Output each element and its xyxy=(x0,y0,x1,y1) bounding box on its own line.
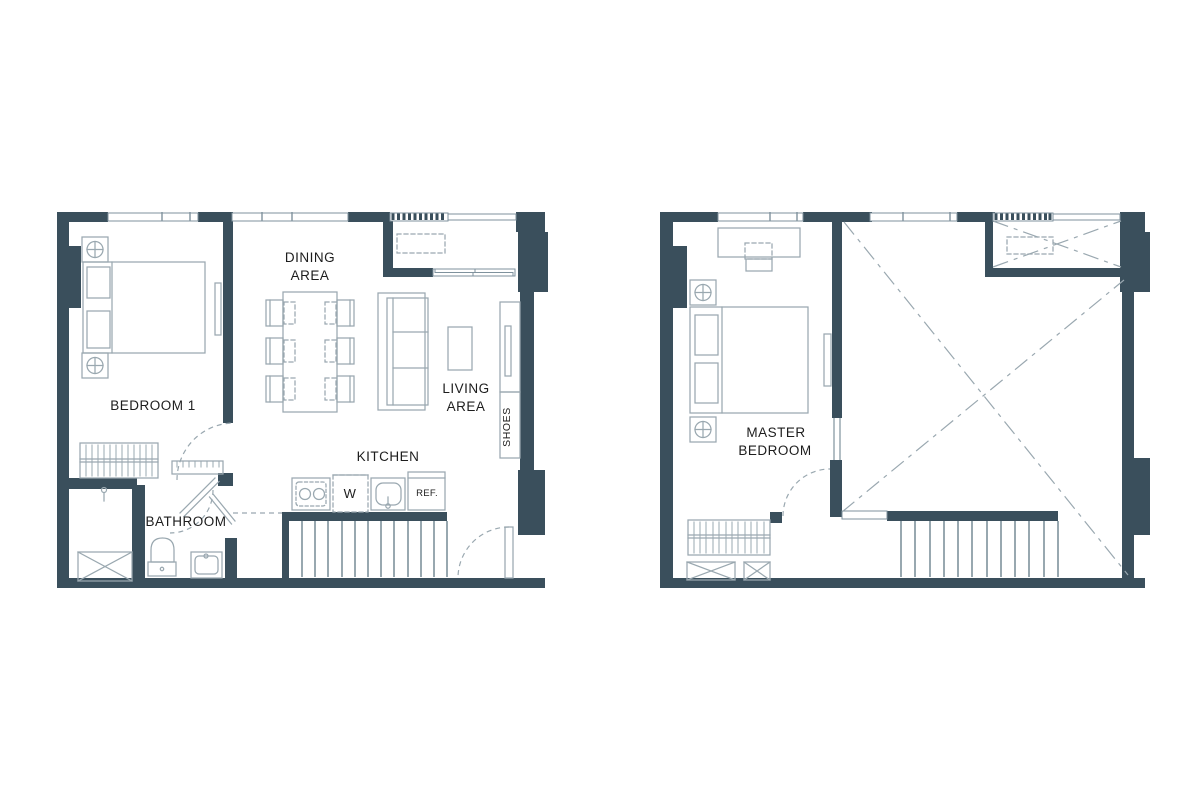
lower-floor-plan: DINING AREA BEDROOM 1 LIVING AREA KITCHE… xyxy=(57,212,548,588)
lower-door-arcs xyxy=(170,423,509,578)
nightstand-lamp-icon xyxy=(82,237,108,262)
dining-chair-icon xyxy=(266,300,295,326)
fridge-label: REF. xyxy=(416,488,438,499)
floor-plan-page: DINING AREA BEDROOM 1 LIVING AREA KITCHE… xyxy=(0,0,1200,800)
lower-stairs-icon xyxy=(302,521,447,577)
dining-chair-icon xyxy=(325,300,354,326)
floor-plans-canvas: DINING AREA BEDROOM 1 LIVING AREA KITCHE… xyxy=(0,0,1200,800)
master-bed-icon xyxy=(690,307,808,413)
nightstand-lamp-icon xyxy=(82,353,108,378)
sofa-icon xyxy=(378,293,428,410)
tv-icon xyxy=(824,334,831,386)
wardrobe-icon xyxy=(80,443,158,478)
bed-icon xyxy=(83,262,205,353)
nightstand-lamp-icon xyxy=(690,280,716,305)
bedroom1-door-arc xyxy=(177,423,234,480)
upper-windows xyxy=(718,212,1120,519)
toilet-icon xyxy=(148,538,176,576)
washer-label: W xyxy=(344,486,357,501)
ac-unit-icon xyxy=(397,234,445,253)
nightstand-lamp-icon xyxy=(690,417,716,442)
upper-walls xyxy=(660,212,1150,588)
shaft-x-boxes xyxy=(687,562,770,580)
wardrobe-icon xyxy=(688,520,770,555)
entry-door-leaf xyxy=(505,527,513,578)
master-bedroom-door-arc xyxy=(783,469,830,516)
master-bedroom-label-line2: BEDROOM xyxy=(738,443,811,458)
towel-rack-icon xyxy=(172,461,223,474)
entry-door-arc xyxy=(458,527,509,578)
dining-chair-icon xyxy=(325,376,354,402)
sink-icon xyxy=(371,478,405,510)
dining-chair-icon xyxy=(266,338,295,364)
lower-windows xyxy=(108,212,516,276)
dining-table-icon xyxy=(283,292,337,412)
upper-labels: MASTER BEDROOM xyxy=(738,425,811,458)
upper-floor-plan: MASTER BEDROOM xyxy=(660,212,1150,588)
dining-chair-icon xyxy=(266,376,295,402)
kitchen-label: KITCHEN xyxy=(357,449,420,464)
master-bedroom-label-line1: MASTER xyxy=(746,425,805,440)
shoes-label: SHOES xyxy=(501,407,513,447)
bathroom-sink-icon xyxy=(191,552,222,578)
shower-icon xyxy=(78,488,132,582)
tv-icon xyxy=(215,283,221,335)
living-area-label-line1: LIVING xyxy=(442,381,489,396)
interior-window xyxy=(834,418,840,460)
upper-stairs-icon xyxy=(901,521,1058,577)
upper-furniture xyxy=(687,228,1053,580)
dining-area-label-line2: AREA xyxy=(291,268,330,283)
coffee-table-icon xyxy=(448,327,472,370)
upper-door-arcs xyxy=(783,469,830,516)
dining-chair-icon xyxy=(325,338,354,364)
dining-area-label-line1: DINING xyxy=(285,250,335,265)
living-area-label-line2: AREA xyxy=(447,399,486,414)
bathroom-label: BATHROOM xyxy=(146,514,227,529)
stove-icon xyxy=(292,478,330,510)
desk-icon xyxy=(718,228,800,271)
stair-rail xyxy=(842,511,887,519)
bedroom1-label: BEDROOM 1 xyxy=(110,398,196,413)
